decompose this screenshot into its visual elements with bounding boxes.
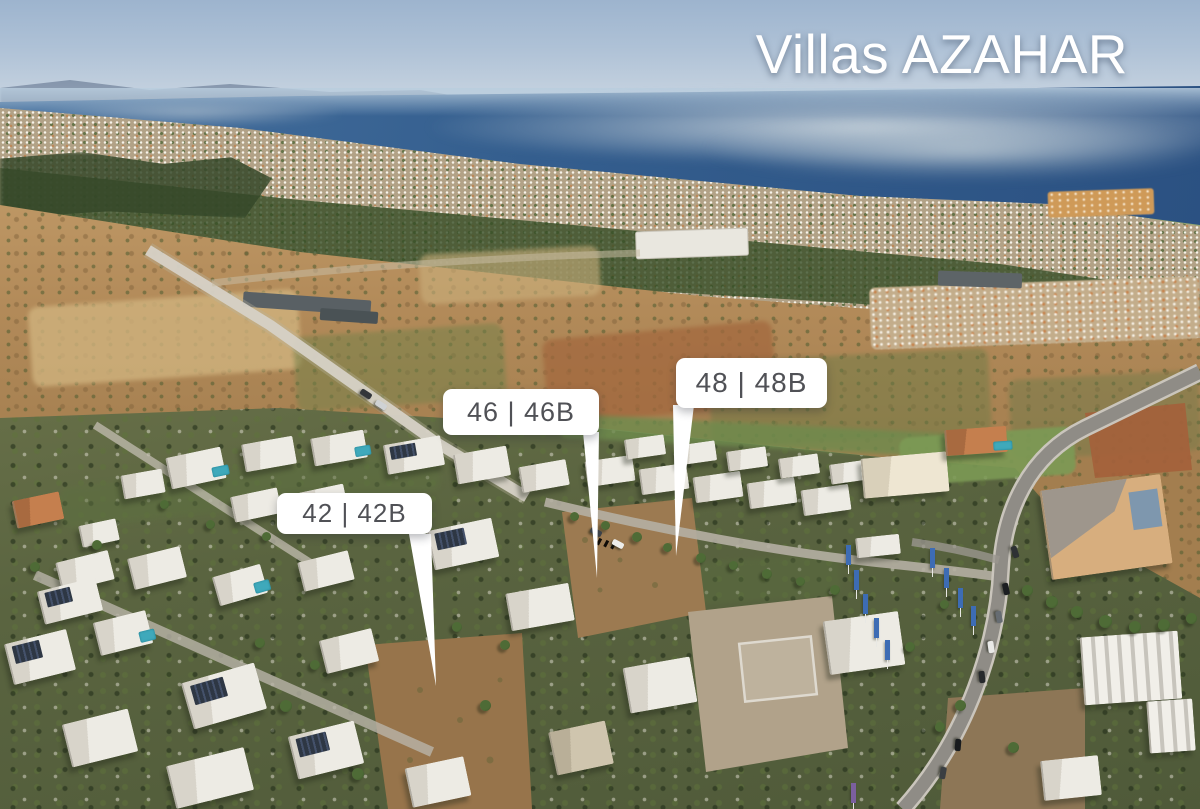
plot-label-46: 46 | 46B <box>443 389 599 435</box>
aerial-photo: 42 | 42B 46 | 46B 48 | 48B Villas AZAHAR <box>0 0 1200 809</box>
plot-label-42: 42 | 42B <box>277 493 432 534</box>
plot-label-42-text: 42 | 42B <box>302 498 406 529</box>
plot-label-46-text: 46 | 46B <box>467 397 575 428</box>
callout-tail-48 <box>673 405 694 556</box>
callout-tail-42 <box>409 534 436 686</box>
plot-label-48: 48 | 48B <box>676 358 827 408</box>
development-title: Villas AZAHAR <box>756 22 1128 86</box>
callout-pointers <box>0 0 1200 809</box>
callout-tail-46 <box>583 432 599 578</box>
plot-label-48-text: 48 | 48B <box>696 367 808 399</box>
